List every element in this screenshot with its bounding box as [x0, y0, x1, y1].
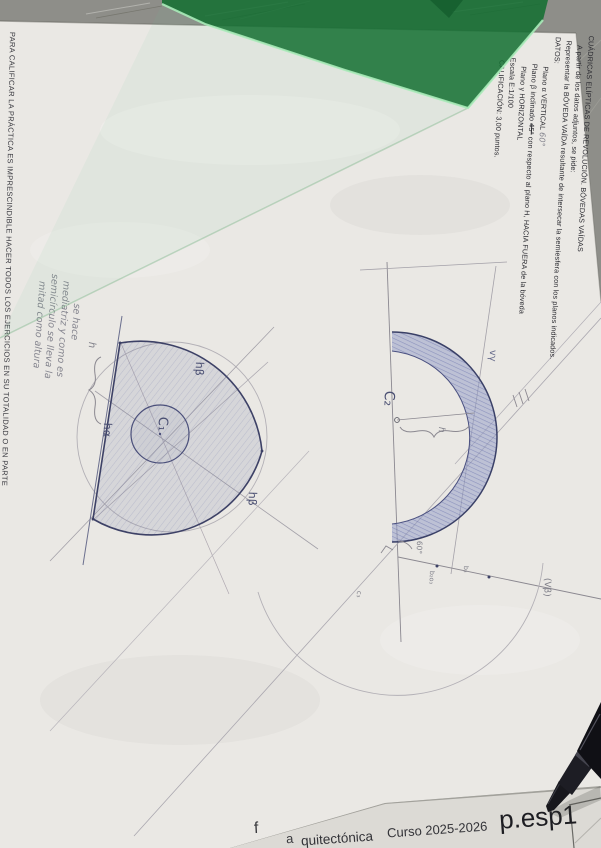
plan-outer-circle — [77, 342, 267, 532]
plano-beta-pre: Plano β inclinado — [527, 64, 539, 124]
construction-semicircle — [258, 563, 543, 695]
label-c1: C₁ — [155, 416, 170, 431]
label-point-b2o3: b₂o₃ — [428, 571, 436, 585]
pen-grip — [558, 752, 593, 795]
pen-ring — [575, 747, 594, 767]
pen-body — [577, 702, 601, 779]
label-hbeta-bottom: hβ — [246, 492, 259, 506]
elevation-axis — [387, 262, 401, 642]
label-plan-height: h — [86, 342, 97, 349]
right-angle-mark — [381, 546, 393, 553]
label-point-b3: b₃ — [462, 566, 470, 573]
plan-trace-hbeta-top — [50, 327, 274, 561]
set-square-corner-notch — [430, 0, 463, 18]
label-point-c3: c₃ — [355, 591, 363, 598]
label-hbeta-top: hβ — [193, 362, 206, 376]
footer-fragment-1: f — [254, 820, 259, 838]
label-vgamma: vγ — [487, 350, 498, 362]
footer-sheet-code: p.esp1 — [498, 799, 578, 835]
footer-fragment-2: a — [285, 831, 293, 846]
plan-inner-circle — [131, 405, 189, 463]
footer-course-year: Curso 2025-2026 — [387, 819, 488, 841]
angle-arc-60 — [398, 541, 412, 549]
plan-view — [50, 316, 318, 594]
green-set-square — [162, 0, 548, 108]
pen — [546, 702, 601, 812]
center-c2-marker — [395, 418, 400, 423]
label-c2: C₂ — [380, 390, 397, 406]
photo-of-worksheet: CUÁDRICAS ELÍPTICAS DE REVOLUCIÓN. BÓVED… — [0, 0, 601, 848]
footer-course-name: quitectónica — [301, 829, 374, 848]
side-warning-note: PARA CALIFICAR LA PRÁCTICA ES IMPRESCIND… — [0, 32, 17, 486]
title-block: CUÁDRICAS ELÍPTICAS DE REVOLUCIÓN. BÓVED… — [478, 31, 597, 421]
label-halpha: hα — [101, 423, 114, 438]
label-vbeta: (Vβ) — [541, 578, 552, 597]
elevation-height-brace — [400, 426, 469, 437]
label-elevation-height: h — [436, 427, 446, 433]
plano-alpha-handwritten-angle: 60° — [537, 132, 547, 147]
plan-height-brace — [89, 357, 101, 424]
plano-alpha-text: Plano α VERTICAL — [538, 66, 550, 130]
plan-vault-outline — [93, 341, 262, 535]
plano-beta-struck-angle: 45° — [527, 123, 537, 135]
label-angle-60: 60° — [415, 541, 424, 555]
set-square-bevel-highlight — [162, 4, 543, 108]
pen-body-highlight — [580, 714, 600, 750]
plan-trace-hbeta-bottom — [95, 391, 318, 549]
handwritten-note: se hace mediatriz y como es semicírculo … — [29, 273, 84, 381]
plan-trace-halpha — [83, 316, 122, 565]
